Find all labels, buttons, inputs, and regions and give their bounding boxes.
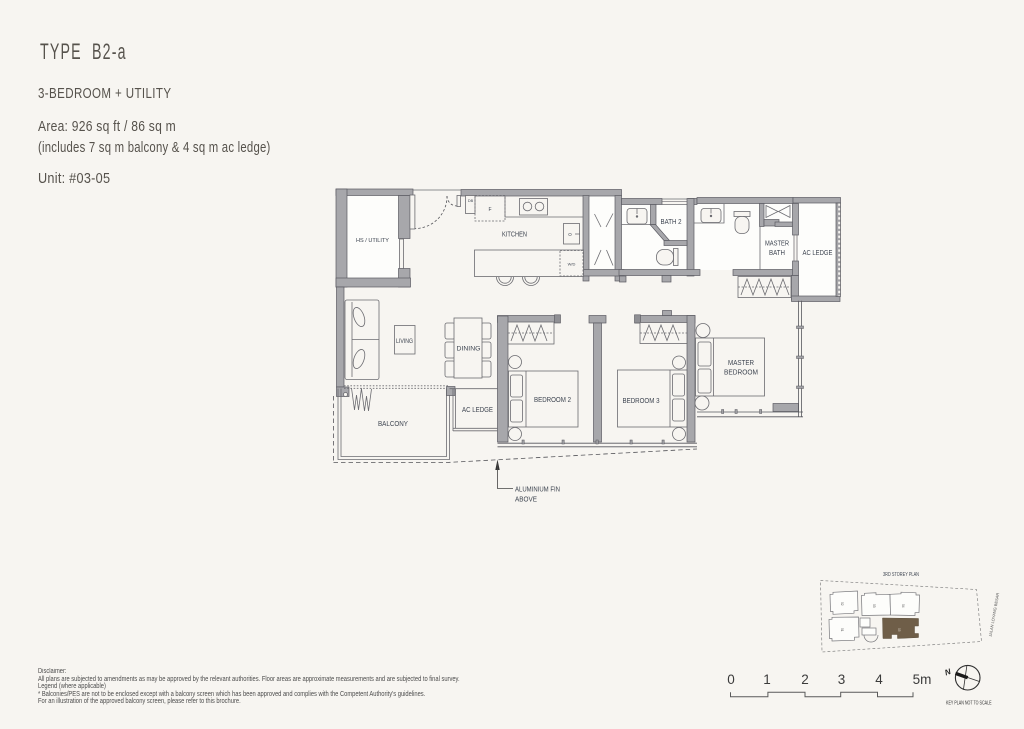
svg-text:0: 0 (727, 672, 735, 687)
svg-text:KITCHEN: KITCHEN (502, 232, 527, 239)
svg-text:05: 05 (897, 628, 901, 632)
svg-text:MASTER: MASTER (765, 241, 789, 248)
svg-text:02: 02 (840, 602, 844, 606)
svg-text:5m: 5m (913, 672, 932, 687)
svg-text:W/D: W/D (568, 262, 576, 267)
svg-text:LIVING: LIVING (396, 338, 413, 345)
svg-text:ALUMINIUM FIN: ALUMINIUM FIN (515, 487, 560, 494)
svg-text:O: O (568, 232, 572, 237)
svg-text:AC LEDGE: AC LEDGE (803, 250, 833, 257)
svg-text:N: N (944, 667, 953, 677)
svg-text:F: F (488, 207, 491, 213)
svg-text:BALCONY: BALCONY (378, 421, 408, 428)
svg-text:ABOVE: ABOVE (515, 497, 537, 504)
svg-text:KEY PLAN NOT TO SCALE: KEY PLAN NOT TO SCALE (946, 701, 992, 707)
svg-text:HS / UTILITY: HS / UTILITY (356, 238, 389, 244)
svg-text:BEDROOM 2: BEDROOM 2 (534, 397, 571, 404)
svg-text:MASTER: MASTER (728, 360, 754, 367)
svg-text:03: 03 (872, 604, 876, 608)
svg-text:DB: DB (468, 199, 474, 203)
svg-text:1: 1 (763, 672, 771, 687)
svg-text:AC LEDGE: AC LEDGE (462, 407, 493, 414)
svg-text:01: 01 (840, 628, 844, 632)
svg-text:3: 3 (838, 672, 846, 687)
svg-text:04: 04 (901, 604, 905, 608)
svg-text:2: 2 (801, 672, 809, 687)
svg-text:JALAN LOYANG BESAR: JALAN LOYANG BESAR (988, 592, 1001, 637)
svg-text:BATH 2: BATH 2 (661, 219, 682, 226)
svg-text:4: 4 (875, 672, 883, 687)
svg-text:BEDROOM: BEDROOM (724, 370, 758, 377)
svg-text:DINING: DINING (457, 346, 481, 353)
svg-text:BEDROOM 3: BEDROOM 3 (623, 398, 660, 405)
svg-text:BATH: BATH (769, 250, 785, 257)
svg-text:3RD STOREY PLAN: 3RD STOREY PLAN (883, 572, 919, 578)
